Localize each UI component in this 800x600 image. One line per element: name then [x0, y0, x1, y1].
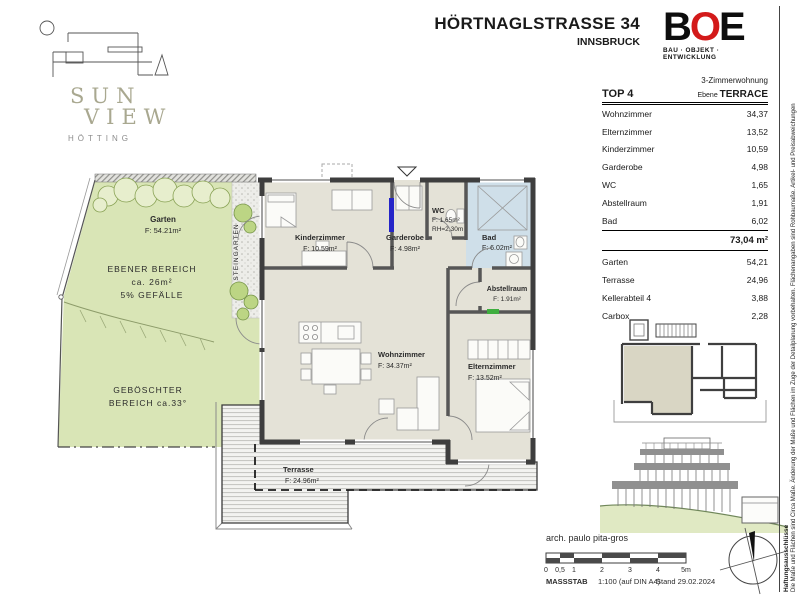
row-value: 4,98 — [751, 162, 768, 172]
title-block: HÖRTNAGLSTRASSE 34 INNSBRUCK — [360, 14, 640, 48]
wc-label: WC — [432, 206, 445, 215]
wohnzimmer-label: Wohnzimmer — [378, 350, 425, 359]
tick-1: 1 — [572, 567, 576, 574]
row-value: 34,37 — [747, 109, 768, 119]
scale-bar: arch. paulo pita-gros 0 0,5 1 2 3 4 5m M… — [544, 533, 715, 586]
table-row: Garderobe4,98 — [602, 158, 768, 176]
garderobe-label: Garderobe — [386, 233, 424, 242]
canopy-dashed — [322, 164, 352, 178]
tick-5m: 5m — [681, 567, 691, 574]
row-value: 1,91 — [751, 198, 768, 208]
key-plan — [614, 320, 766, 422]
table-row: Abstellraum1,91 — [602, 194, 768, 212]
table-row: Wohnzimmer34,37 — [602, 105, 768, 123]
wall-marker-green — [487, 309, 499, 314]
row-value: 10,59 — [747, 144, 768, 154]
row-value: 2,28 — [751, 311, 768, 321]
garderobe-area: F: 4.98m² — [390, 246, 421, 253]
total-area: 73,04 m² — [602, 230, 768, 251]
sunview-logo-art — [40, 21, 168, 77]
elternzimmer-label: Elternzimmer — [468, 362, 516, 371]
bad-label: Bad — [482, 233, 497, 242]
row-label: Abstellraum — [602, 198, 647, 208]
logo-word-view: VIEW — [84, 105, 172, 129]
unit-type: 3-Zimmerwohnung — [602, 76, 768, 85]
row-label: Bad — [602, 216, 617, 226]
page-title: HÖRTNAGLSTRASSE 34 — [360, 14, 640, 34]
table-row: Kinderzimmer10,59 — [602, 141, 768, 159]
page-subtitle: INNSBRUCK — [360, 36, 640, 48]
disclaimer-text: Die Maße und Flächen sind Circa Maße. Än… — [791, 17, 799, 592]
bad-floor — [466, 182, 533, 268]
architect-name: arch. paulo pita-gros — [546, 533, 629, 543]
row-label: Elternzimmer — [602, 127, 652, 137]
wall-marker-blue — [389, 198, 394, 232]
masstab-label: MASSSTAB — [546, 577, 588, 586]
entrance-marker — [398, 167, 416, 176]
scale-ticks: 0 0,5 1 2 3 4 5m — [544, 567, 691, 574]
apartment: Kinderzimmer F: 10.59m² Garderobe F: 4.9… — [236, 164, 535, 486]
bad-area: F: 6.02m² — [482, 245, 513, 252]
slope-area-label-1: GEBÖSCHTER — [113, 385, 183, 395]
disclaimer-strip: Haftungsausschlüsse Die Maße und Flächen… — [783, 17, 799, 592]
masstab-date: Stand 29.02.2024 — [656, 577, 715, 586]
row-value: 54,21 — [747, 257, 768, 267]
tick-2: 2 — [600, 567, 604, 574]
table-row: WC1,65 — [602, 176, 768, 194]
row-label: Kinderzimmer — [602, 144, 654, 154]
terrasse-area: F: 24.96m² — [285, 478, 320, 485]
abstellraum-label: Abstellraum — [487, 286, 527, 293]
slope-area-label-2: BEREICH ca.33° — [109, 398, 187, 408]
abstellraum-area: F: 1.91m² — [493, 296, 522, 303]
boe-letter-o: O — [690, 5, 719, 49]
wohnzimmer-area: F: 34.37m² — [378, 363, 413, 370]
row-label: Wohnzimmer — [602, 109, 652, 119]
row-label: Carbox — [602, 311, 629, 321]
divider-rule — [779, 6, 780, 592]
row-label: Garten — [602, 257, 628, 267]
row-label: Terrasse — [602, 275, 635, 285]
level-label: Ebene — [697, 92, 719, 99]
disclaimer-title: Haftungsausschlüsse — [783, 17, 791, 592]
survey-point — [59, 295, 63, 299]
table-row: Terrasse24,96 — [602, 271, 768, 289]
table-row: Kellerabteil 43,88 — [602, 289, 768, 307]
table-row: Garten54,21 — [602, 253, 768, 271]
boe-letter-b: B — [663, 5, 690, 49]
row-label: Garderobe — [602, 162, 643, 172]
compass — [720, 528, 787, 594]
level: Ebene TERRACE — [697, 89, 768, 100]
boe-tagline: BAU · OBJEKT · ENTWICKLUNG — [663, 47, 775, 61]
wc-height: RH=2,30m — [432, 226, 463, 233]
tick-0: 0 — [544, 567, 548, 574]
row-label: Kellerabteil 4 — [602, 293, 651, 303]
boe-letter-e: E — [719, 5, 744, 49]
tick-3: 3 — [628, 567, 632, 574]
building-elevation — [600, 438, 788, 533]
kinderzimmer-area: F: 10.59m² — [303, 246, 338, 253]
table-row: Elternzimmer13,52 — [602, 123, 768, 141]
tick-05: 0,5 — [555, 567, 565, 574]
flat-area-label-3: 5% GEFÄLLE — [121, 290, 184, 300]
row-value: 24,96 — [747, 275, 768, 285]
masstab-value: 1:100 (auf DIN A4) — [598, 577, 661, 586]
tick-4: 4 — [656, 567, 660, 574]
row-value: 13,52 — [747, 127, 768, 137]
level-value: TERRACE — [720, 89, 768, 100]
row-value: 1,65 — [751, 180, 768, 190]
unit-summary-table: 3-Zimmerwohnung TOP 4 Ebene TERRACE Wohn… — [602, 76, 768, 325]
row-label: WC — [602, 180, 616, 190]
top-number: TOP 4 — [602, 88, 633, 100]
row-value: 3,88 — [751, 293, 768, 303]
flat-area-label-1: EBENER BEREICH — [107, 264, 196, 274]
table-header: TOP 4 Ebene TERRACE — [602, 88, 768, 105]
table-row: Bad6,02 — [602, 212, 768, 230]
row-value: 6,02 — [751, 216, 768, 226]
boe-letters: BOE — [663, 8, 775, 46]
garden-area-label: F: 54.21m² — [145, 226, 182, 235]
table-row: Carbox2,28 — [602, 307, 768, 325]
plan-sheet: { "header": { "title": "HÖRTNAGLSTRASSE … — [0, 0, 800, 600]
kinderzimmer-label: Kinderzimmer — [295, 233, 345, 242]
elternzimmer-area: F: 13.52m² — [468, 375, 503, 382]
garden-label: Garten — [150, 215, 176, 224]
flat-area-label-2: ca. 26m² — [131, 277, 172, 287]
boe-logo: BOE BAU · OBJEKT · ENTWICKLUNG — [663, 8, 775, 61]
terrasse-label: Terrasse — [283, 465, 314, 474]
wc-area: F: 1.65m² — [432, 217, 461, 224]
logo-word-hotting: HÖTTING — [68, 134, 132, 143]
